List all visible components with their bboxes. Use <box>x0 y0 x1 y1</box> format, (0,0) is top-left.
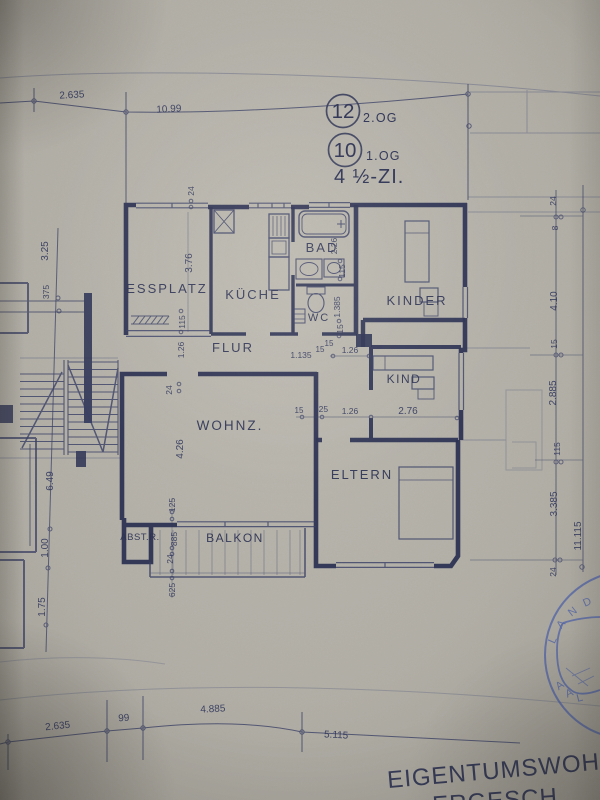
dim-eltern-15: 15 <box>295 406 304 415</box>
unit-10-floor: 1.OG <box>366 149 401 163</box>
dim-wohnz-426: 4.26 <box>175 439 186 459</box>
dim-essplatz-376: 3.76 <box>184 253 195 273</box>
unit-12-number: 12 <box>332 100 355 123</box>
room-label-kinder: KINDER <box>386 293 447 308</box>
dim-eltern-276: 2.76 <box>398 406 418 417</box>
dim-bottom-4: 5.115 <box>324 729 349 741</box>
room-label-eltern: ELTERN <box>331 467 393 482</box>
dim-top-1: 2.635 <box>59 89 85 101</box>
dim-right-1: 24 <box>548 196 558 206</box>
dim-wc-15b: 15 <box>325 339 334 348</box>
dim-bad-1385: 1.385 <box>332 296 342 318</box>
dim-flur-126: 1.26 <box>176 341 186 358</box>
dim-balkon-24: 24 <box>165 554 175 564</box>
dim-balkon-625: 625 <box>167 583 177 597</box>
blueprint-photo: 2.635 10.99 12 2.OG 10 1.OG 4 ½-ZI. 3.25… <box>0 0 600 800</box>
room-label-balkon: BALKON <box>206 531 264 545</box>
dim-left-2: 375 <box>41 285 51 299</box>
apartment-type: 4 ½-ZI. <box>334 166 404 188</box>
dim-balkon-885: 885 <box>169 532 179 546</box>
room-label-essplatz: ESSPLATZ <box>126 281 208 296</box>
dim-left-5: 1.75 <box>37 597 48 617</box>
dim-top-2: 10.99 <box>156 103 182 115</box>
left-edge-wall <box>0 405 13 423</box>
dim-right-5: 2.885 <box>548 380 559 405</box>
dim-right-2: 8 <box>550 225 560 230</box>
dim-wc-1135: 1.135 <box>290 350 312 360</box>
room-label-wohnz: WOHNZ. <box>197 418 264 433</box>
dim-bad-15: 15 <box>335 324 345 334</box>
unit-10-number: 10 <box>334 139 357 162</box>
dim-right-6: 115 <box>552 442 562 456</box>
dim-eltern-126: 1.26 <box>342 406 359 416</box>
dim-right-total: 11.115 <box>573 521 584 551</box>
dim-wall-24-top: 24 <box>186 186 196 196</box>
room-label-kueche: KÜCHE <box>225 287 281 302</box>
dim-balkon-125: 125 <box>167 498 177 512</box>
dim-kind-126: 1.26 <box>342 345 359 355</box>
stairwell-wall <box>84 293 92 423</box>
wall-mass-corridor <box>356 334 372 347</box>
dim-right-3: 4.10 <box>549 291 560 311</box>
dim-left-3: 6.49 <box>45 471 56 491</box>
room-label-kind: KIND <box>387 372 422 386</box>
dim-right-8: 24 <box>548 567 558 577</box>
dim-right-4: 15 <box>549 339 559 349</box>
dim-bad-226: 2.26 <box>329 237 339 254</box>
dim-bottom-3: 4.885 <box>200 703 226 715</box>
dim-bad-115: 115 <box>337 264 347 278</box>
dim-bottom-2: 99 <box>118 713 130 725</box>
dim-flur-24: 24 <box>164 385 174 395</box>
dim-left-1: 3.25 <box>40 241 51 261</box>
room-label-flur: FLUR <box>212 340 254 355</box>
stairwell-wall-lower <box>76 451 86 467</box>
room-label-wc: WC <box>308 312 330 324</box>
unit-12-floor: 2.OG <box>363 111 398 125</box>
room-label-abstr: ABST.R. <box>120 532 159 543</box>
dim-left-4: 1.00 <box>40 538 51 558</box>
floor-plan-svg: 2.635 10.99 12 2.OG 10 1.OG 4 ½-ZI. 3.25… <box>0 0 600 800</box>
dim-eltern-625: 625 <box>314 404 328 414</box>
dim-right-7: 3.385 <box>549 491 560 516</box>
dim-flur-115: 115 <box>177 315 187 329</box>
